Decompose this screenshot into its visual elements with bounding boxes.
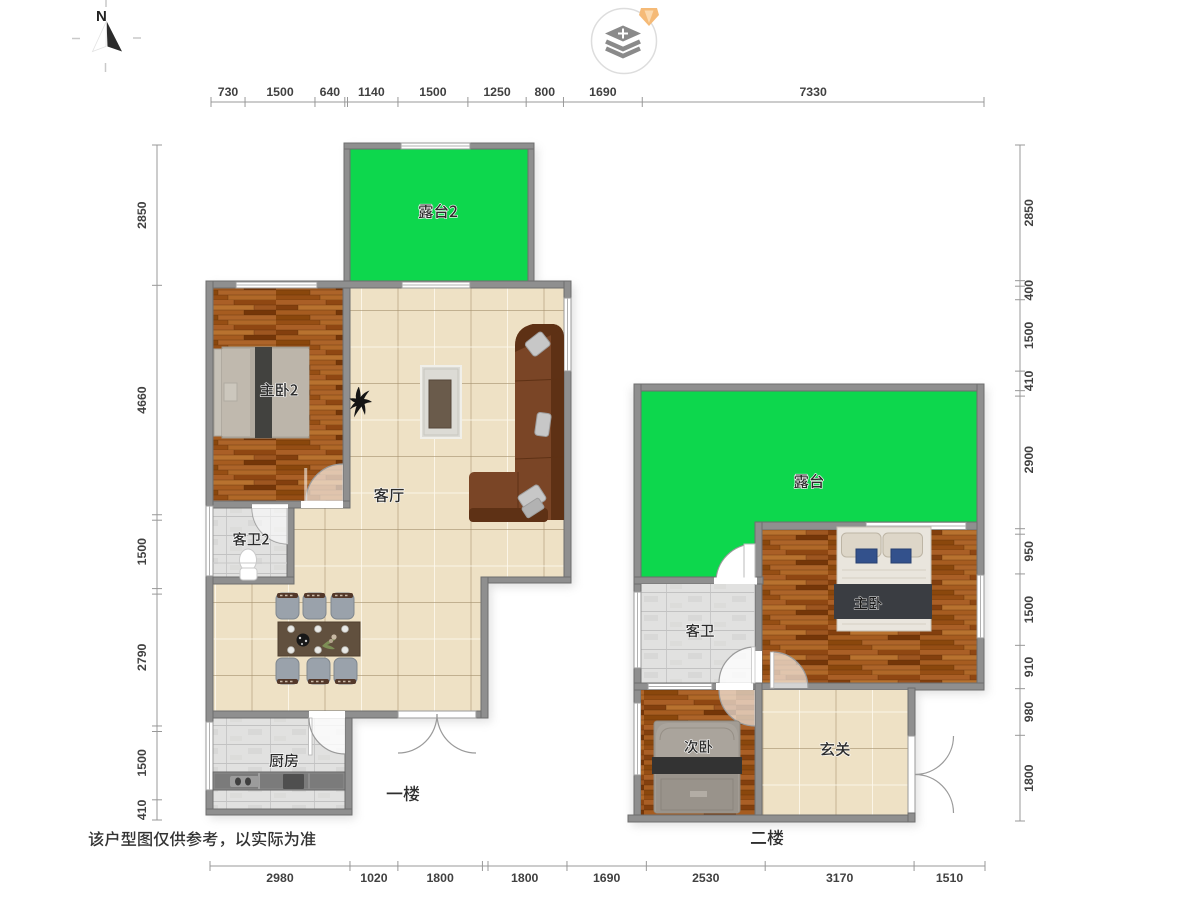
svg-text:2900: 2900 xyxy=(1022,446,1036,474)
svg-text:980: 980 xyxy=(1022,702,1036,723)
svg-text:2790: 2790 xyxy=(135,643,149,671)
svg-text:4660: 4660 xyxy=(135,386,149,414)
svg-text:1500: 1500 xyxy=(419,85,447,99)
svg-text:1800: 1800 xyxy=(511,871,539,885)
svg-text:640: 640 xyxy=(320,85,341,99)
svg-text:1250: 1250 xyxy=(483,85,511,99)
svg-text:730: 730 xyxy=(218,85,239,99)
svg-text:1500: 1500 xyxy=(1022,322,1036,350)
svg-text:1500: 1500 xyxy=(135,538,149,566)
svg-text:1510: 1510 xyxy=(936,871,964,885)
svg-text:1800: 1800 xyxy=(1022,764,1036,792)
svg-text:400: 400 xyxy=(1022,280,1036,301)
svg-text:410: 410 xyxy=(1022,370,1036,391)
svg-text:1690: 1690 xyxy=(589,85,617,99)
svg-text:7330: 7330 xyxy=(799,85,827,99)
svg-text:1800: 1800 xyxy=(426,871,454,885)
svg-text:1690: 1690 xyxy=(593,871,621,885)
svg-text:800: 800 xyxy=(535,85,556,99)
svg-text:1140: 1140 xyxy=(358,85,385,99)
svg-text:2850: 2850 xyxy=(1022,199,1036,227)
svg-text:1020: 1020 xyxy=(360,871,388,885)
svg-text:2850: 2850 xyxy=(135,201,149,229)
svg-text:3170: 3170 xyxy=(826,871,854,885)
svg-text:N: N xyxy=(96,8,107,25)
svg-text:1500: 1500 xyxy=(1022,596,1036,624)
svg-text:1500: 1500 xyxy=(266,85,294,99)
svg-text:2980: 2980 xyxy=(266,871,294,885)
svg-text:2530: 2530 xyxy=(692,871,720,885)
svg-text:1500: 1500 xyxy=(135,749,149,777)
svg-text:410: 410 xyxy=(135,799,149,820)
svg-text:910: 910 xyxy=(1022,657,1036,678)
svg-text:950: 950 xyxy=(1022,541,1036,562)
